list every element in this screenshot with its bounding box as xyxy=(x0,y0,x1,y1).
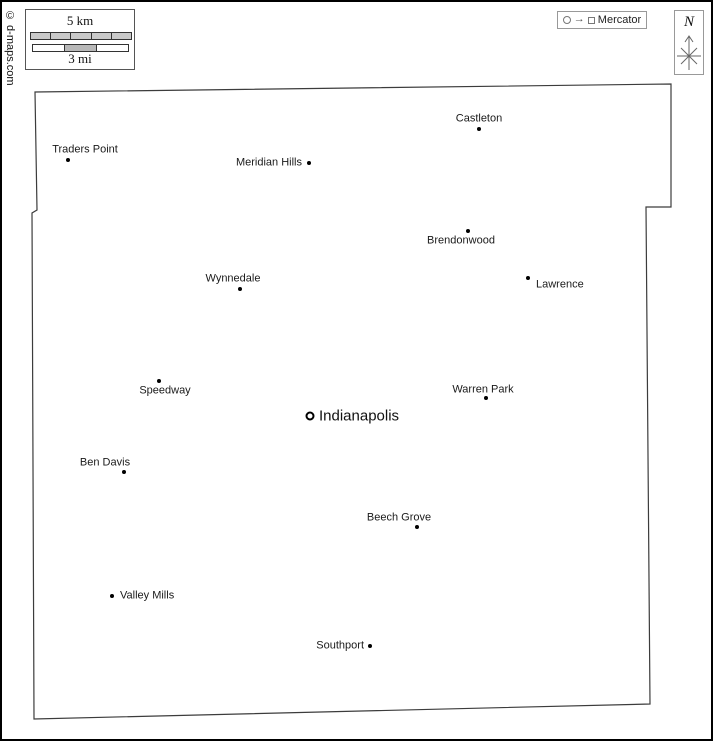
city-dot xyxy=(157,379,161,383)
scale-km-segment xyxy=(71,33,91,39)
city-label: Valley Mills xyxy=(120,591,174,602)
scale-mi-segment xyxy=(97,45,128,51)
scale-km-label: 5 km xyxy=(26,14,134,27)
scale-mi-label: 3 mi xyxy=(26,52,134,65)
scale-km-bar xyxy=(30,32,132,40)
city-dot xyxy=(238,287,242,291)
scale-km-segment xyxy=(51,33,71,39)
city-label: Beech Grove xyxy=(367,513,431,524)
north-label: N xyxy=(675,15,703,30)
city-label: Indianapolis xyxy=(319,409,399,424)
city-label: Meridian Hills xyxy=(236,158,302,169)
compass-star-icon xyxy=(675,31,703,71)
scale-mi-segment xyxy=(33,45,65,51)
city-label: Brendonwood xyxy=(427,236,495,247)
city-dot xyxy=(526,276,530,280)
city-label: Speedway xyxy=(139,386,190,397)
city-label: Traders Point xyxy=(52,145,118,156)
city-dot xyxy=(466,229,470,233)
city-label: Southport xyxy=(316,641,364,652)
city-dot xyxy=(66,158,70,162)
scale-km-segment xyxy=(112,33,131,39)
city-dot xyxy=(415,525,419,529)
projection-square-icon xyxy=(588,17,595,24)
globe-circle-icon xyxy=(563,16,571,24)
scale-km-segment xyxy=(92,33,112,39)
city-label: Warren Park xyxy=(452,385,513,396)
city-label: Ben Davis xyxy=(80,458,130,469)
scale-bar: 5 km 3 mi xyxy=(25,9,135,70)
scale-km-segment xyxy=(31,33,51,39)
county-outline xyxy=(32,84,671,719)
capital-marker xyxy=(306,412,315,421)
county-boundary-svg xyxy=(2,2,713,741)
city-label: Lawrence xyxy=(536,280,584,291)
projection-legend: → Mercator xyxy=(557,11,647,29)
arrow-right-icon: → xyxy=(574,14,585,25)
city-dot xyxy=(110,594,114,598)
city-dot xyxy=(477,127,481,131)
city-label: Castleton xyxy=(456,114,502,125)
city-dot xyxy=(484,396,488,400)
city-label: Wynnedale xyxy=(206,274,261,285)
projection-label: Mercator xyxy=(598,15,641,26)
city-dot xyxy=(307,161,311,165)
copyright-text: © d-maps.com xyxy=(4,10,15,86)
map-canvas: CastletonTraders PointMeridian HillsBren… xyxy=(0,0,713,741)
compass-rose: N xyxy=(674,10,704,75)
city-dot xyxy=(368,644,372,648)
city-dot xyxy=(122,470,126,474)
